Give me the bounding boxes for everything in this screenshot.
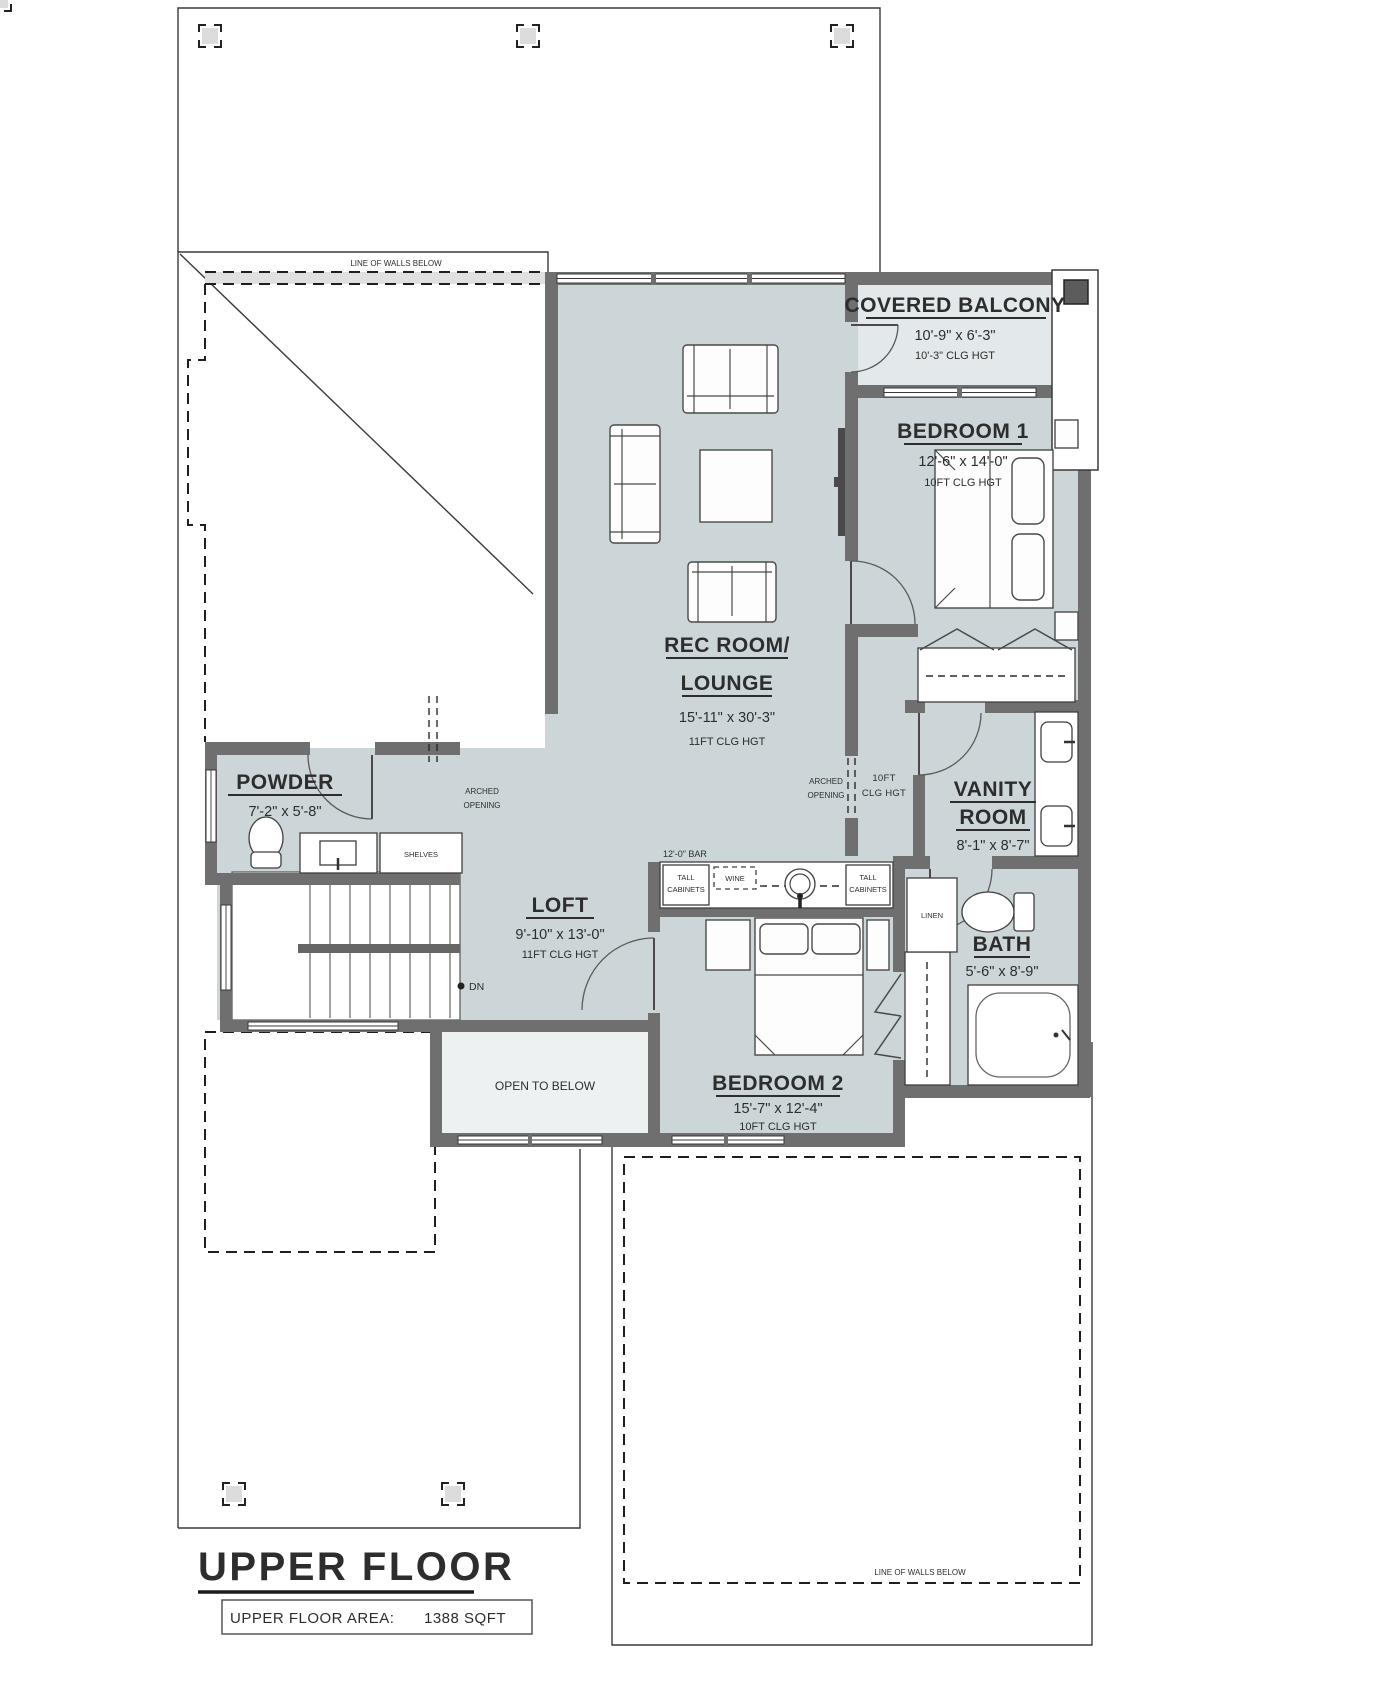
sofa-bottom (688, 562, 776, 622)
rec-room-name-line1: REC ROOM/ (664, 634, 790, 657)
tall-cabinets-right-line1: TALL (859, 873, 876, 882)
loft-name: LOFT (532, 894, 589, 917)
nightstand (867, 920, 889, 970)
arched-opening-left-line2: OPENING (464, 801, 501, 810)
arched-opening-right-line2: OPENING (808, 791, 845, 800)
bar-label: 12'-0" BAR (663, 849, 707, 859)
area-label: UPPER FLOOR AREA: (230, 1610, 394, 1627)
staircase (232, 872, 465, 1020)
down-label: DN (469, 981, 484, 993)
line-of-walls-below-bottom-label: LINE OF WALLS BELOW (874, 1568, 966, 1577)
covered-balcony-ceiling: 10'-3" CLG HGT (915, 350, 995, 362)
bath-dims: 5'-6" x 8'-9" (965, 964, 1038, 980)
bathtub (968, 985, 1078, 1085)
tall-cabinets-left-line1: TALL (677, 873, 694, 882)
vanity-name-line2: ROOM (959, 806, 1026, 829)
powder-sink-vanity (300, 833, 377, 873)
covered-balcony-name: COVERED BALCONY (844, 294, 1065, 317)
powder-name: POWDER (236, 771, 334, 794)
tall-cabinets-right-line2: CABINETS (849, 885, 887, 894)
rec-room-name-line2: LOUNGE (681, 672, 774, 695)
hall-ceiling-line2: CLG HGT (862, 788, 906, 799)
powder-dims: 7'-2" x 5'-8" (248, 804, 321, 820)
upper-floor-plan: COVERED BALCONY 10'-9" x 6'-3" 10'-3" CL… (0, 0, 1374, 1690)
rec-room-dims: 15'-11" x 30'-3" (679, 710, 775, 726)
vanity-name-line1: VANITY (954, 778, 1032, 801)
covered-balcony-dims: 10'-9" x 6'-3" (914, 328, 995, 344)
bedroom2-ceiling: 10FT CLG HGT (739, 1121, 817, 1133)
wine-label: WINE (725, 874, 745, 883)
floor-plan-page: COVERED BALCONY 10'-9" x 6'-3" 10'-3" CL… (0, 0, 1374, 1690)
arched-opening-left-line1: ARCHED (465, 787, 499, 796)
bedroom1-name: BEDROOM 1 (897, 420, 1029, 443)
bath-name: BATH (973, 933, 1032, 956)
bedroom1-ceiling: 10FT CLG HGT (924, 477, 1002, 489)
nightstand (706, 920, 750, 970)
area-value: 1388 SQFT (424, 1610, 506, 1627)
bedroom2-dims: 15'-7" x 12'-4" (733, 1101, 822, 1117)
nightstand (1055, 612, 1078, 640)
bedroom1-dims: 12'-6" x 14'-0" (918, 454, 1007, 470)
bedroom2-name: BEDROOM 2 (712, 1072, 844, 1095)
loft-dims: 9'-10" x 13'-0" (515, 927, 604, 943)
title-block: UPPER FLOOR UPPER FLOOR AREA: 1388 SQFT (198, 1545, 532, 1634)
tall-cabinets-left-line2: CABINETS (667, 885, 705, 894)
sofa-top (683, 345, 778, 413)
rec-room-ceiling: 11FT CLG HGT (689, 736, 766, 748)
powder-toilet (249, 817, 283, 868)
bath-toilet (962, 892, 1034, 932)
linen-label: LINEN (921, 911, 943, 920)
open-to-below-label: OPEN TO BELOW (495, 1079, 596, 1093)
hall-ceiling-line1: 10FT (872, 773, 895, 784)
arched-opening-right-line1: ARCHED (809, 777, 843, 786)
nightstand (1055, 420, 1078, 448)
loveseat-left (610, 425, 660, 543)
stair-down-marker (458, 983, 465, 990)
coffee-table (700, 450, 772, 522)
column-marker (0, 0, 11, 11)
loft-ceiling: 11FT CLG HGT (522, 949, 599, 961)
vanity-counter (1035, 712, 1078, 856)
line-of-walls-below-top-label: LINE OF WALLS BELOW (350, 259, 442, 268)
vanity-dims: 8'-1" x 8'-7" (956, 838, 1029, 854)
plan-title: UPPER FLOOR (198, 1545, 514, 1589)
shelves-label: SHELVES (404, 850, 438, 859)
